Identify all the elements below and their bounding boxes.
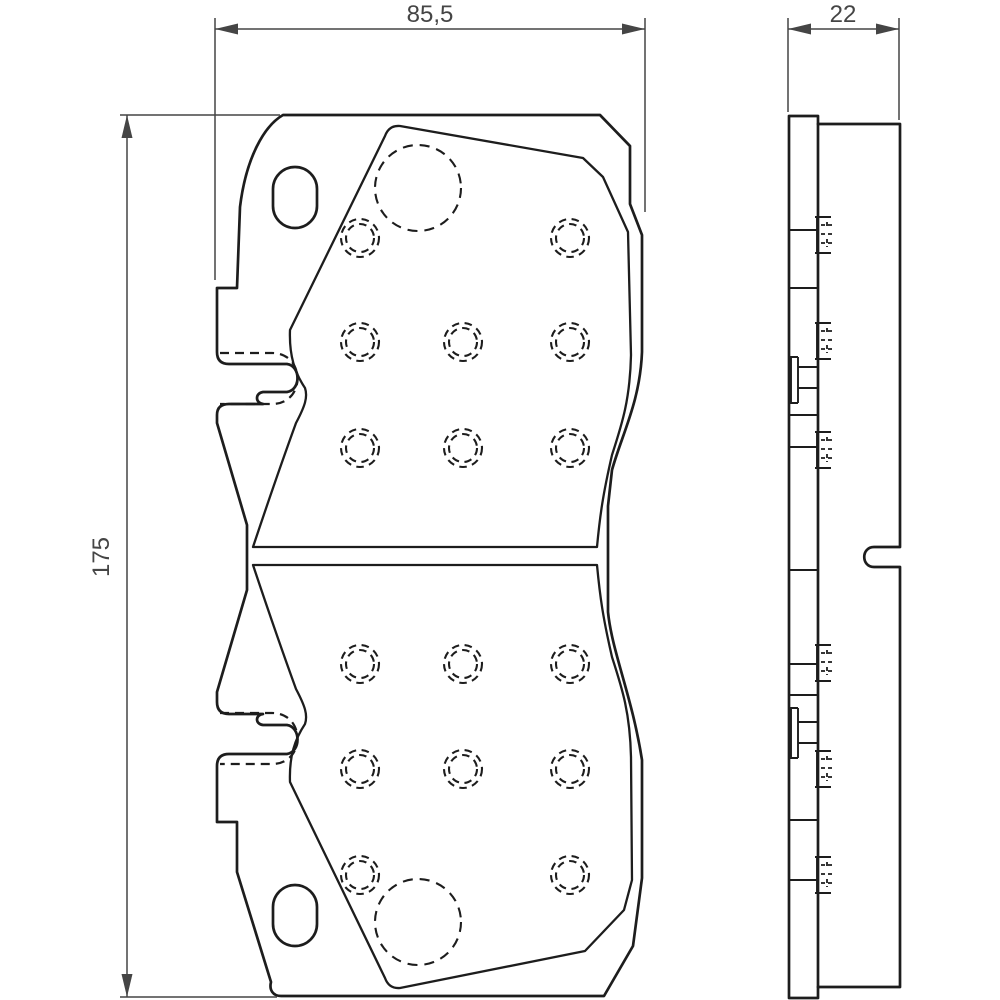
front-bore-lower — [375, 879, 461, 965]
front-bore-upper — [375, 145, 461, 231]
arrow-right-icon — [876, 24, 899, 35]
arrow-left-icon — [788, 24, 811, 35]
brake-pad-drawing: 85,5 22 175 — [0, 0, 1000, 1000]
hidden-hook-contour-lower — [220, 713, 298, 764]
front-width-label: 85,5 — [407, 1, 454, 28]
dimension-front-height: 175 — [88, 115, 280, 997]
side-thickness-label: 22 — [830, 1, 857, 28]
dimension-side-thickness: 22 — [788, 1, 899, 120]
front-slot-upper — [273, 167, 317, 228]
front-view — [217, 115, 642, 996]
arrow-left-icon — [215, 24, 238, 35]
front-backplate-outline — [217, 115, 642, 996]
front-rivet-holes — [341, 219, 589, 894]
arrow-right-icon — [622, 24, 645, 35]
front-friction-lower-outline — [253, 565, 632, 988]
arrow-up-icon — [122, 115, 133, 138]
front-slot-lower — [273, 885, 317, 946]
dimension-front-width: 85,5 — [215, 1, 645, 280]
side-view — [789, 116, 900, 998]
hidden-hook-contour-upper — [220, 353, 298, 404]
technical-drawing-page: 85,5 22 175 — [0, 0, 1000, 1000]
side-backplate — [789, 116, 818, 998]
side-backplate-feature-lines — [789, 230, 818, 880]
front-height-label: 175 — [88, 537, 115, 577]
arrow-down-icon — [122, 974, 133, 997]
front-friction-upper-outline — [253, 126, 631, 547]
